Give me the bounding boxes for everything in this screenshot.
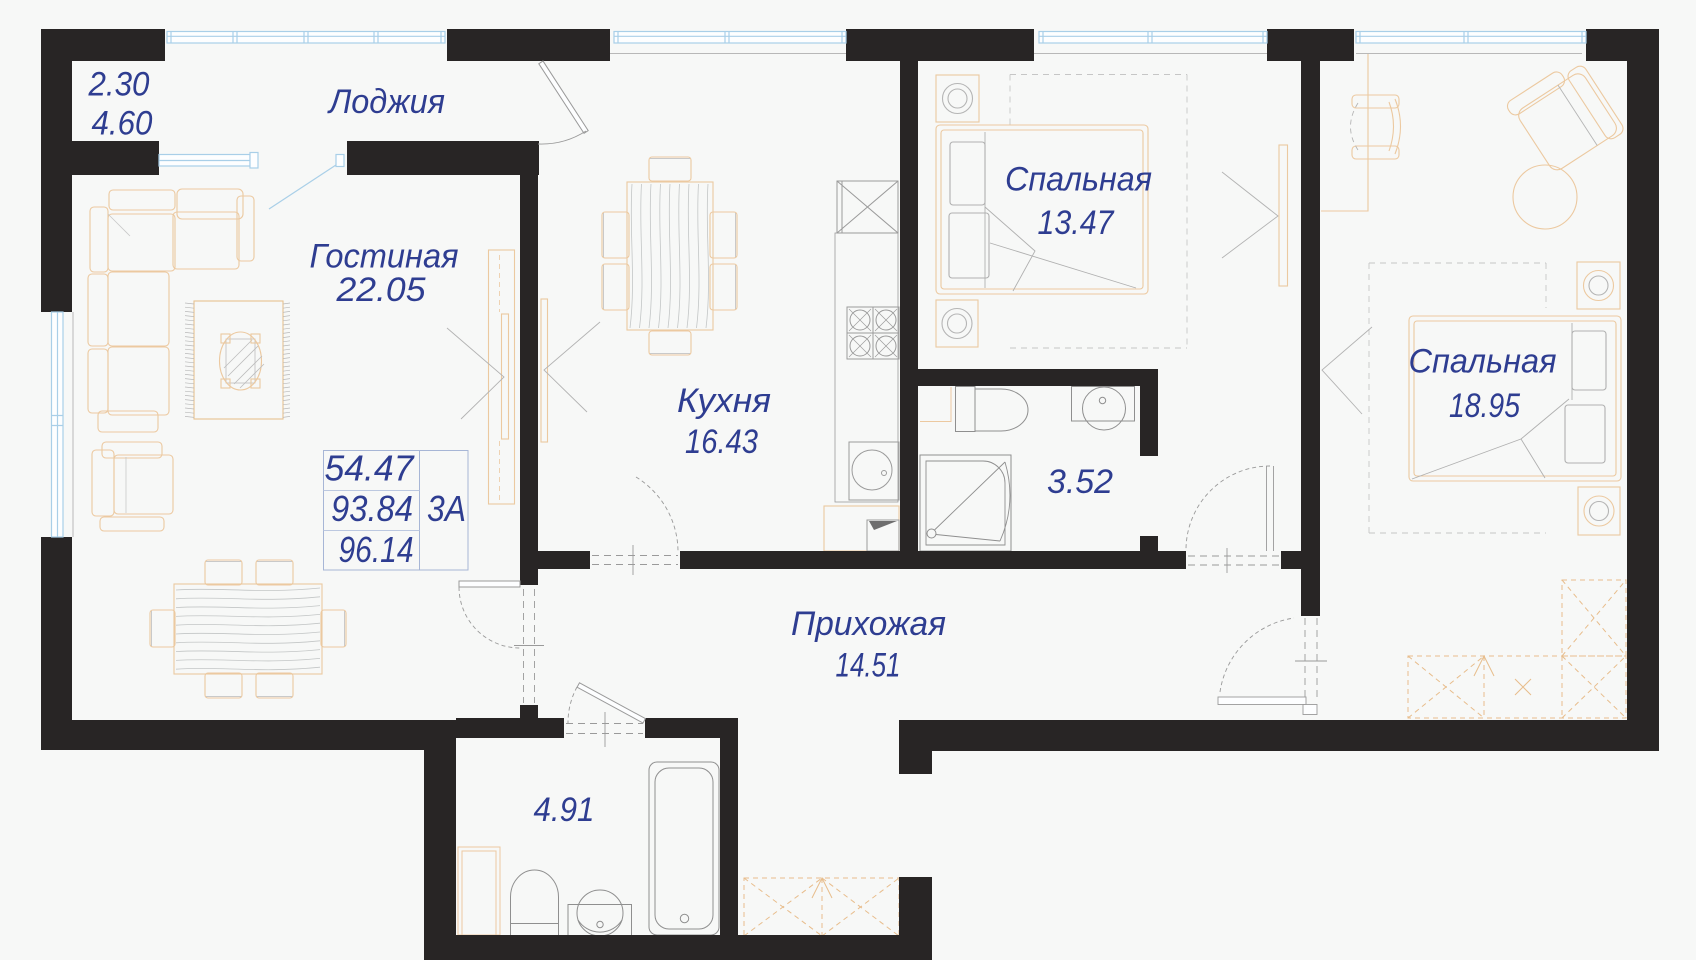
svg-text:Прихожая: Прихожая (791, 605, 946, 643)
svg-text:Спальная: Спальная (1409, 343, 1557, 381)
svg-text:3А: 3А (427, 488, 466, 529)
svg-text:13.47: 13.47 (1038, 204, 1115, 242)
svg-text:Кухня: Кухня (677, 382, 771, 420)
svg-text:Гостиная: Гостиная (310, 238, 459, 276)
svg-text:Спальная: Спальная (1005, 161, 1152, 199)
svg-text:4.60: 4.60 (92, 105, 153, 143)
svg-text:18.95: 18.95 (1449, 387, 1520, 425)
svg-text:Лоджия: Лоджия (327, 83, 445, 121)
svg-text:16.43: 16.43 (685, 423, 758, 461)
svg-text:4.91: 4.91 (534, 791, 595, 829)
svg-text:96.14: 96.14 (339, 529, 414, 570)
svg-text:22.05: 22.05 (335, 271, 425, 309)
svg-text:93.84: 93.84 (331, 488, 413, 529)
svg-text:54.47: 54.47 (325, 448, 416, 489)
svg-text:14.51: 14.51 (836, 647, 901, 685)
svg-text:2.30: 2.30 (88, 66, 150, 104)
svg-text:3.52: 3.52 (1047, 463, 1113, 501)
